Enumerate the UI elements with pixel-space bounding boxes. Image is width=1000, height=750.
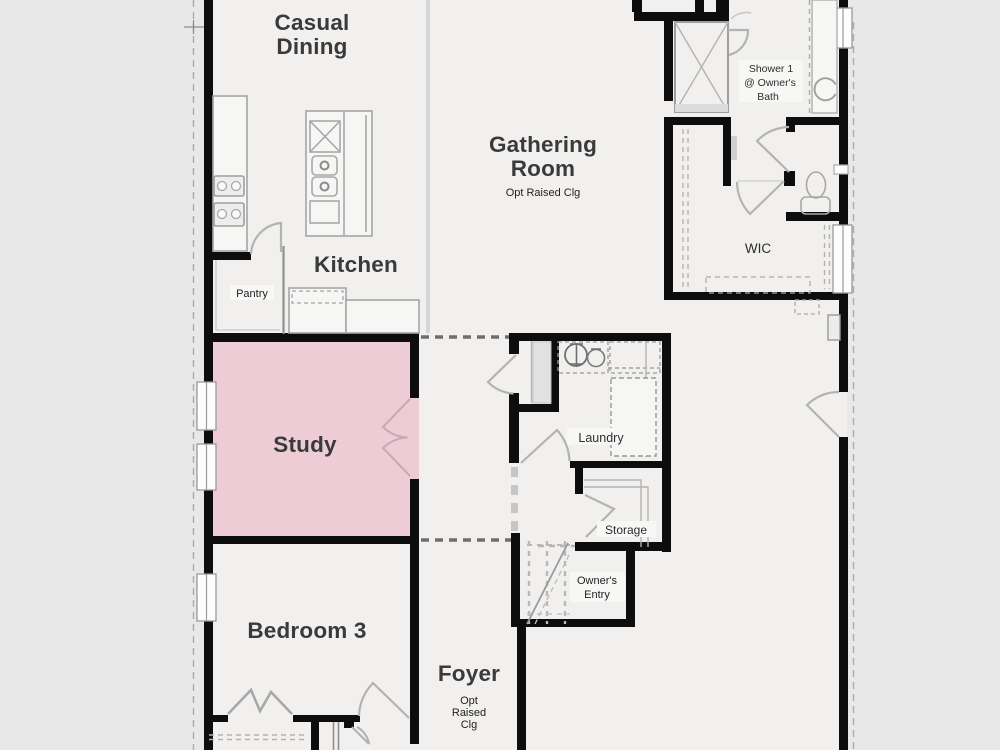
svg-text:Opt: Opt bbox=[460, 695, 478, 707]
svg-text:Bath: Bath bbox=[757, 91, 779, 103]
svg-text:Opt Raised Clg: Opt Raised Clg bbox=[506, 187, 581, 199]
svg-text:Pantry: Pantry bbox=[236, 288, 268, 300]
svg-text:Laundry: Laundry bbox=[578, 431, 624, 445]
svg-text:Gathering: Gathering bbox=[489, 132, 597, 157]
svg-text:Dining: Dining bbox=[276, 34, 347, 59]
svg-text:Bedroom 3: Bedroom 3 bbox=[247, 618, 366, 643]
svg-text:Storage: Storage bbox=[605, 523, 647, 537]
svg-text:Clg: Clg bbox=[461, 719, 478, 731]
svg-text:Owner's: Owner's bbox=[577, 575, 617, 587]
svg-text:Casual: Casual bbox=[275, 10, 350, 35]
svg-text:Raised: Raised bbox=[452, 707, 486, 719]
svg-text:@ Owner's: @ Owner's bbox=[744, 77, 796, 89]
svg-text:Kitchen: Kitchen bbox=[314, 252, 398, 277]
svg-text:Foyer: Foyer bbox=[438, 661, 500, 686]
svg-text:WIC: WIC bbox=[745, 241, 771, 256]
svg-text:Entry: Entry bbox=[584, 589, 610, 601]
svg-text:Room: Room bbox=[511, 156, 576, 181]
svg-text:Shower 1: Shower 1 bbox=[749, 63, 794, 75]
svg-text:Study: Study bbox=[273, 432, 337, 457]
